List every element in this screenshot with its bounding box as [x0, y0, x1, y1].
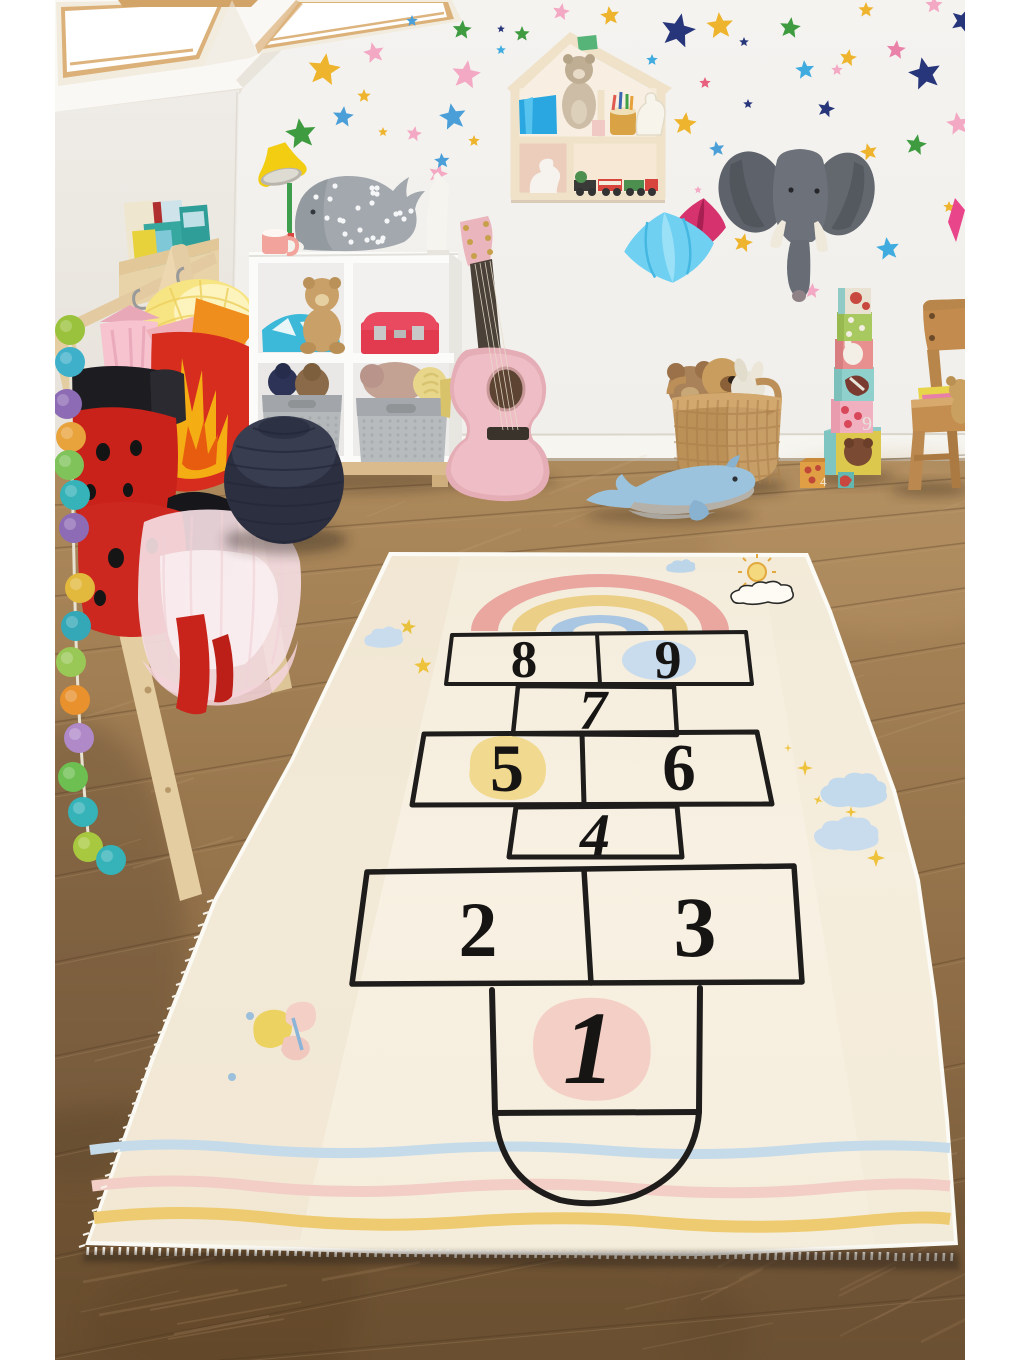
svg-text:7: 7 [579, 680, 609, 742]
svg-text:2: 2 [459, 886, 498, 973]
svg-text:9: 9 [655, 630, 682, 690]
svg-text:9: 9 [862, 413, 872, 435]
svg-text:6: 6 [662, 731, 696, 805]
svg-text:4: 4 [820, 474, 827, 489]
svg-text:8: 8 [511, 631, 538, 689]
svg-text:4: 4 [579, 802, 610, 868]
svg-text:3: 3 [674, 879, 717, 975]
svg-text:1: 1 [563, 991, 615, 1106]
svg-text:5: 5 [490, 730, 524, 806]
